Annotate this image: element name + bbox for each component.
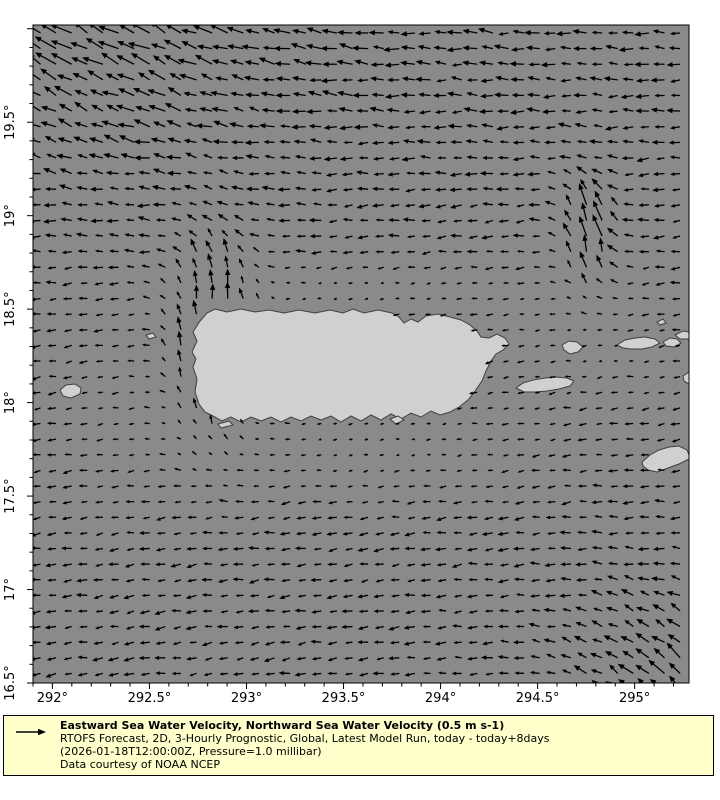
y-tick-label: 19.5° bbox=[3, 104, 18, 139]
legend-title: Eastward Sea Water Velocity, Northward S… bbox=[60, 720, 550, 733]
y-tick-label: 18° bbox=[3, 391, 18, 414]
x-tick-label: 293° bbox=[231, 691, 262, 706]
legend-subtitle-dataset: RTOFS Forecast, 2D, 3-Hourly Prognostic,… bbox=[60, 733, 550, 746]
reference-vector-arrow-icon bbox=[14, 726, 48, 738]
legend-box: Eastward Sea Water Velocity, Northward S… bbox=[3, 715, 714, 776]
y-tick-label: 17° bbox=[3, 578, 18, 601]
y-tick-label: 18.5° bbox=[3, 291, 18, 326]
legend-credit: Data courtesy of NOAA NCEP bbox=[60, 759, 550, 772]
x-tick-label: 292.5° bbox=[128, 691, 172, 706]
legend-text: Eastward Sea Water Velocity, Northward S… bbox=[60, 720, 550, 772]
legend-subtitle-time-pressure: (2026-01-18T12:00:00Z, Pressure=1.0 mill… bbox=[60, 746, 550, 759]
x-tick-label: 294.5° bbox=[516, 691, 560, 706]
y-tick-label: 17.5° bbox=[3, 478, 18, 513]
y-tick-label: 16.5° bbox=[3, 665, 18, 700]
sea-water-velocity-map: 292°292.5°293°293.5°294°294.5°295°16.5°1… bbox=[0, 0, 720, 707]
island-puerto-rico bbox=[192, 309, 509, 422]
erddap-quiver-figure: 292°292.5°293°293.5°294°294.5°295°16.5°1… bbox=[0, 0, 720, 800]
x-tick-label: 295° bbox=[619, 691, 650, 706]
x-tick-label: 293.5° bbox=[322, 691, 366, 706]
x-tick-label: 292° bbox=[37, 691, 68, 706]
x-tick-label: 294° bbox=[425, 691, 456, 706]
y-tick-label: 19° bbox=[3, 204, 18, 227]
